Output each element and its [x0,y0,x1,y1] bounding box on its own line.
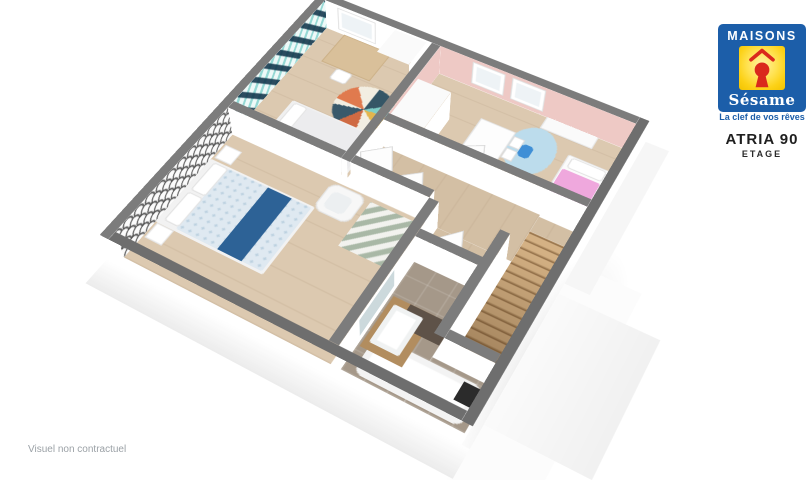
keyhole-icon [739,46,785,90]
maisons-sesame-logo: MAISONS Sésame [718,24,806,112]
model-name: ATRIA 90 [710,131,811,148]
disclaimer-text: Visuel non contractuel [28,444,126,455]
page: MAISONS Sésame La clef de vos rêves ATRI… [0,0,811,480]
floorplan-3d [109,19,643,448]
logo-yellow-box [739,46,785,90]
floorplan-scene [0,0,811,480]
logo-maisons-text: MAISONS [718,29,806,43]
model-floor-label: ETAGE [710,149,811,159]
model-block: ATRIA 90 ETAGE [710,131,811,159]
logo-tagline: La clef de vos rêves [710,112,811,122]
logo-sesame-text: Sésame [718,91,806,109]
